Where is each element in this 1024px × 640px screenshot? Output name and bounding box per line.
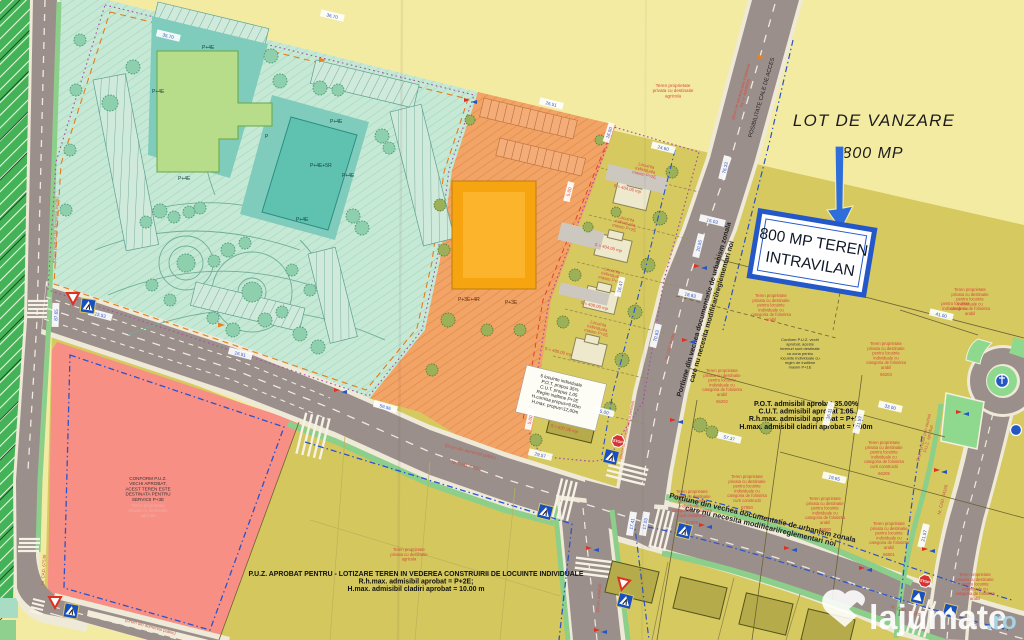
svg-text:arabil: arabil bbox=[820, 520, 830, 525]
svg-text:arabil: arabil bbox=[965, 311, 975, 316]
svg-text:P+4E: P+4E bbox=[152, 89, 165, 95]
svg-text:individuale cu: individuale cu bbox=[942, 306, 968, 311]
svg-text:P+3E: P+3E bbox=[505, 300, 518, 306]
svg-text:agricola: agricola bbox=[665, 93, 682, 98]
svg-text:66203: 66203 bbox=[880, 372, 892, 377]
svg-text:87.65: 87.65 bbox=[53, 309, 58, 321]
svg-text:SERVICII P+3E: SERVICII P+3E bbox=[132, 497, 164, 502]
svg-text:C.U.T. admisibil aprobat 1.05: C.U.T. admisibil aprobat 1.05 bbox=[759, 409, 854, 416]
svg-text:arabil: arabil bbox=[717, 392, 727, 397]
svg-text:67849: 67849 bbox=[686, 520, 698, 525]
svg-text:P+4E: P+4E bbox=[296, 217, 309, 223]
svg-text:H.max. admisibil cladiri aprob: H.max. admisibil cladiri aprobat = 9.00m bbox=[739, 424, 872, 431]
svg-text:maxim P+1E: maxim P+1E bbox=[789, 365, 812, 370]
svg-text:agricola: agricola bbox=[140, 513, 156, 518]
svg-text:P+4E+5R: P+4E+5R bbox=[310, 163, 332, 169]
svg-text:R.h.max. admisibil aprobat = P: R.h.max. admisibil aprobat = P+2E; bbox=[359, 578, 474, 585]
svg-text:arabil: arabil bbox=[881, 365, 891, 370]
svg-text:P.O.T. admisibil aprobat 35.00: P.O.T. admisibil aprobat 35.00% bbox=[754, 401, 859, 408]
svg-text:P+4E: P+4E bbox=[330, 119, 343, 125]
svg-text:800 MP: 800 MP bbox=[842, 145, 903, 162]
svg-text:arabil: arabil bbox=[766, 317, 776, 322]
svg-text:curti constructii: curti constructii bbox=[733, 498, 761, 503]
svg-text:P+3E+4R: P+3E+4R bbox=[458, 297, 480, 303]
svg-text:P+4E: P+4E bbox=[202, 45, 215, 51]
svg-text:R.h.max. admisibil aprobat = P: R.h.max. admisibil aprobat = P+2E bbox=[749, 416, 864, 423]
svg-text:agricola: agricola bbox=[402, 557, 417, 562]
svg-text:66205: 66205 bbox=[878, 471, 890, 476]
svg-text:66501: 66501 bbox=[883, 552, 895, 557]
svg-text:P+4E: P+4E bbox=[178, 176, 191, 182]
svg-text:P+4E: P+4E bbox=[342, 173, 355, 179]
svg-text:arabil: arabil bbox=[884, 545, 894, 550]
svg-text:curti constructii: curti constructii bbox=[870, 464, 898, 469]
svg-text:66202: 66202 bbox=[716, 399, 728, 404]
svg-text:LOT DE VANZARE: LOT DE VANZARE bbox=[793, 111, 955, 130]
svg-text:P.U.Z. APROBAT PENTRU - LOTIZA: P.U.Z. APROBAT PENTRU - LOTIZARE TEREN I… bbox=[249, 571, 584, 578]
svg-text:.ro: .ro bbox=[986, 608, 1017, 635]
svg-text:H.max. admisibil cladiri aprob: H.max. admisibil cladiri aprobat = 10.00… bbox=[348, 586, 485, 593]
